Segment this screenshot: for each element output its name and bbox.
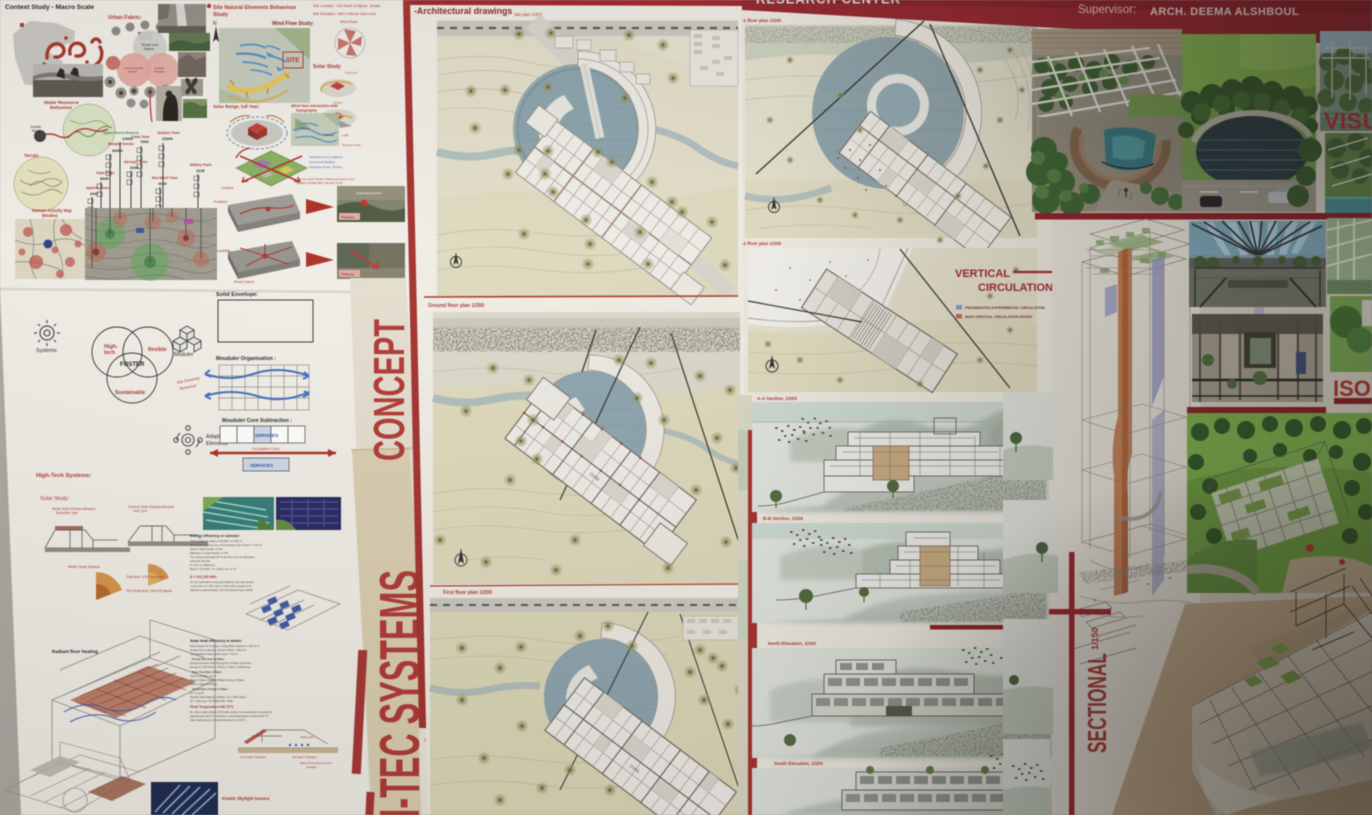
svg-text:Plateau: Plateau <box>324 133 335 137</box>
svg-text:Vegetative Cover (Algebra): Vegetative Cover (Algebra) <box>309 155 343 159</box>
svg-text:Changer: Changer <box>306 765 317 769</box>
svg-text:First floor plan 1/200: First floor plan 1/200 <box>443 590 492 596</box>
svg-text:Supervisor:: Supervisor: <box>1078 4 1136 16</box>
svg-text:Circulation Core: Circulation Core <box>252 447 279 451</box>
svg-text:Mass of Water Volume of Water: Mass of Water Volume of Water Density of… <box>190 679 244 682</box>
svg-text:Road Users: Road Users <box>234 280 254 284</box>
svg-text:20000: 20000 <box>112 150 123 154</box>
svg-text:23000: 23000 <box>162 138 173 142</box>
svg-text:8000: 8000 <box>100 178 109 182</box>
svg-text:topography: topography <box>296 109 318 113</box>
svg-text:Context Study - Macro Scale: Context Study - Macro Scale <box>5 4 94 11</box>
svg-text:Solar Energy Per Collector: m²: Solar Energy Per Collector: m²/day/kWh i… <box>190 645 260 648</box>
svg-text:4500: 4500 <box>158 183 167 187</box>
svg-text:Light: Light <box>342 133 349 137</box>
svg-text:flexible: flexible <box>148 347 167 353</box>
svg-text:Ground floor plan 1/200: Ground floor plan 1/200 <box>428 303 484 309</box>
svg-text:Energy Q = 500 W/m² x 748.2m²: Energy Q = 500 W/m² x 748.2m² x 60sec x … <box>190 666 251 669</box>
svg-text:Orjan Town: Orjan Town <box>96 171 114 175</box>
svg-text:daytime is approximately 103 2: daytime is approximately 103 235 kilowat… <box>190 588 253 592</box>
svg-text:December 1pm: December 1pm <box>56 511 78 515</box>
svg-text:Systems: Systems <box>36 348 57 354</box>
svg-text:Area of Solar Panels: 17.5%: Area of Solar Panels: 17.5% <box>190 547 223 551</box>
svg-text:Factors: Factors <box>128 70 138 74</box>
svg-text:Specific Heat Capacity of Wate: Specific Heat Capacity of Water: Cp = 41… <box>190 696 246 699</box>
svg-text:-1 floor plan 1/200: -1 floor plan 1/200 <box>742 18 782 23</box>
svg-text:Jarbaho Town: Jarbaho Town <box>157 131 180 135</box>
svg-text:when starting from an initial: when starting from an initial temperatur… <box>190 719 246 722</box>
svg-text:CIRCULATION: CIRCULATION <box>978 282 1053 294</box>
svg-text:Summer: Summer <box>345 71 359 75</box>
svg-text:Urban Fabric:: Urban Fabric: <box>108 15 142 21</box>
svg-text:E = W x A x Efficiency: E = W x A x Efficiency <box>190 563 216 567</box>
svg-text:ΔT = Q/(m·cp) = 50 000/80 000: ΔT = Q/(m·cp) = 50 000/80 000 x 4186 <box>190 700 234 703</box>
svg-text:High-Tech Systems:: High-Tech Systems: <box>36 473 91 479</box>
svg-text:Summer wind: Summer wind <box>342 143 361 147</box>
svg-text:Military Point: Military Point <box>190 163 212 167</box>
svg-text:VERTICAL: VERTICAL <box>955 268 1010 280</box>
svg-text:Position: Position <box>214 200 228 204</box>
svg-text:SERVICES: SERVICES <box>250 463 273 468</box>
svg-text:Total Area: 378.2 M square: Total Area: 378.2 M square <box>126 575 164 579</box>
svg-text:Site Elevation : 800 m Above S: Site Elevation : 800 m Above Sea Level <box>313 12 376 16</box>
svg-text:(Nodes): (Nodes) <box>42 213 58 218</box>
svg-text:SITE: SITE <box>286 58 299 64</box>
svg-text:FOSTER: FOSTER <box>120 362 145 368</box>
svg-text:So, the estimated energy gener: So, the estimated energy generated by th… <box>190 580 254 584</box>
svg-text:Hot water Changers: Hot water Changers <box>292 755 317 759</box>
svg-text:RESEARCH CENTER: RESEARCH CENTER <box>756 0 901 7</box>
svg-text:Kinetic Skylight louvers: Kinetic Skylight louvers <box>222 796 270 801</box>
svg-text:Mouduler Core Subtraction :: Mouduler Core Subtraction : <box>222 418 292 424</box>
svg-text:FRAGMANTED EXPERIMENTAL CIRCUL: FRAGMANTED EXPERIMENTAL CIRCULATION <box>965 306 1045 310</box>
svg-text:Solar Heat efficiency in winte: Solar Heat efficiency in winter: <box>190 639 242 643</box>
svg-text:MAIN VERTICAL CIRCULATION NODE: MAIN VERTICAL CIRCULATION NODES <box>965 315 1033 319</box>
svg-text:GREEN COVER 80%, MACRO 70.62: GREEN COVER 80%, MACRO 70.62 <box>296 181 343 185</box>
svg-text:Energy Absorbed Solar Energy F: Energy Absorbed Solar Energy Flux Surfac… <box>190 662 252 665</box>
svg-text:7000: 7000 <box>140 141 149 145</box>
svg-text:CONCEPT: CONCEPT <box>365 319 414 461</box>
svg-text:The energy generated 20 % rate: The energy generated 20 % rate from can … <box>190 555 255 559</box>
svg-text:in one hour is 2,700 x 2pm or: in one hour is 2,700 x 2pm or 44m with a… <box>190 584 252 588</box>
svg-text:Plateau: Plateau <box>341 272 355 277</box>
svg-text:1528: 1528 <box>196 170 205 174</box>
svg-text:Mass of Water 80 000kg: Mass of Water 80 000kg <box>190 683 218 686</box>
svg-text:ISOMETR: ISOMETR <box>1333 376 1372 401</box>
svg-text:Mouduler Organisation :: Mouduler Organisation : <box>216 356 276 362</box>
svg-text:Radiant floor heating: Radiant floor heating <box>52 649 98 654</box>
svg-text:South Elevation, 1/200: South Elevation, 1/200 <box>774 761 823 766</box>
svg-text:Plateau: Plateau <box>341 215 355 220</box>
svg-text:Site Natural Elements Behaviou: Site Natural Elements Behaviour <box>213 5 297 11</box>
svg-text:Commercial Building: Commercial Building <box>309 160 335 164</box>
svg-text:Suggested position: Suggested position <box>356 191 382 195</box>
svg-text:Solar Range, full Year:: Solar Range, full Year: <box>213 104 260 109</box>
svg-text:Solar irradiance range is 5.8: Solar irradiance range is 5.8 kWh / m² 2… <box>190 539 242 543</box>
svg-text:13000: 13000 <box>122 138 133 142</box>
svg-text:N: N <box>213 21 217 27</box>
svg-text:Barqash forests: Barqash forests <box>108 142 134 146</box>
svg-text:tech: tech <box>104 350 115 356</box>
svg-text:Sustainable: Sustainable <box>115 390 145 396</box>
svg-text:North Elevation, 1/200: North Elevation, 1/200 <box>768 641 816 646</box>
svg-text:Total Radiated Solar panels Us: Total Radiated Solar panels Used = 713 m… <box>190 653 238 656</box>
svg-text:Solid Envelope:: Solid Envelope: <box>216 292 258 298</box>
svg-text:Moduler: Moduler <box>174 352 194 358</box>
svg-text:Sarooph Town: Sarooph Town <box>124 160 147 164</box>
svg-text:SECTIONAL: SECTIONAL <box>1082 653 1112 753</box>
svg-text:Final Temperature=66.73°C: Final Temperature=66.73°C <box>190 705 234 709</box>
svg-text:1/150: 1/150 <box>1090 627 1100 650</box>
svg-text:Heritage: Heritage <box>154 70 165 74</box>
svg-text:during June (turning time of D: during June (turning time of December) a… <box>190 543 262 547</box>
svg-text:Wind Rose: Wind Rose <box>340 20 358 24</box>
svg-text:Context: Context <box>221 186 233 190</box>
svg-text:Volume of Water: 80 m³: Volume of Water: 80 m³ <box>190 675 216 678</box>
svg-text:Surface Area Collectors of Are: Surface Area Collectors of Area of Roof … <box>190 649 247 652</box>
svg-text:-2 floor plan 1/200: -2 floor plan 1/200 <box>742 241 782 246</box>
svg-text:River: River <box>32 129 41 133</box>
svg-text:Q = m cp ΔT: Q = m cp ΔT <box>190 692 205 695</box>
svg-text:Wind flow interaction with: Wind flow interaction with <box>291 104 339 108</box>
svg-text:E = 103,235 kWh: E = 103,235 kWh <box>190 575 216 579</box>
svg-text:B-B Section, 1/200: B-B Section, 1/200 <box>763 516 804 521</box>
svg-text:2500: 2500 <box>130 167 139 171</box>
svg-text:ARCH. DEEMA ALSHBOUL: ARCH. DEEMA ALSHBOUL <box>1150 6 1299 18</box>
svg-text:Efficiency of Solar Panels: 17: Efficiency of Solar Panels: 17.5% <box>190 551 229 555</box>
svg-text:Solar Study: Solar Study <box>313 64 341 70</box>
svg-text:-Architectural drawings: -Architectural drawings <box>414 6 512 16</box>
svg-text:Site Location : Far South of A: Site Location : Far South of Ajloun, Jor… <box>313 4 380 8</box>
svg-text:Max E = 5.6 kWh / m² x 295.2 m: Max E = 5.6 kWh / m² x 295.2 m² x 0.75 <box>190 567 236 571</box>
svg-text:Plateau: Plateau <box>300 126 311 130</box>
svg-text:Winter Solar Shadow: Winter Solar Shadow <box>68 565 100 569</box>
svg-text:Solar Study:: Solar Study: <box>40 496 69 502</box>
svg-text:Temperature Change of Water:: Temperature Change of Water: <box>192 688 228 691</box>
svg-text:June 1pm: June 1pm <box>133 509 147 513</box>
svg-text:Ras Munif Town: Ras Munif Town <box>152 176 178 180</box>
svg-text:Ajabnah Town: Ajabnah Town <box>86 186 109 190</box>
svg-text:Vegetative Cover - Bushes: Vegetative Cover - Bushes <box>309 165 343 169</box>
svg-text:Energy efficiency in summer:: Energy efficiency in summer: <box>190 534 240 538</box>
svg-text:using the formula: using the formula <box>190 559 210 563</box>
svg-text:approximately 56.3°C, resultin: approximately 56.3°C, resulting in a fin… <box>190 715 269 718</box>
svg-text:So, with a water volume of 80: So, with a water volume of 80 cubic mete… <box>190 711 273 714</box>
svg-text:Nature: Nature <box>144 47 154 51</box>
svg-text:VISUAL: VISUAL <box>1324 108 1372 134</box>
svg-text:Energy Absorbed by Water:: Energy Absorbed by Water: <box>192 658 225 661</box>
svg-text:Cool water Changers: Cool water Changers <box>240 755 267 759</box>
svg-text:A-A Section, 1/200: A-A Section, 1/200 <box>757 396 797 401</box>
svg-text:Study: Study <box>213 12 228 18</box>
svg-text:The Roofs Area: 230.8 M square: The Roofs Area: 230.8 M square <box>126 589 172 593</box>
svg-text:SERVICES: SERVICES <box>255 433 278 438</box>
svg-text:Zubia Town: Zubia Town <box>131 135 150 139</box>
svg-text:Water gate: Water gate <box>300 735 314 739</box>
svg-text:Behaviour: Behaviour <box>50 105 73 110</box>
svg-text:Mass Flow Rate of Water:: Mass Flow Rate of Water: <box>192 671 222 674</box>
svg-text:Wind Flow Study:: Wind Flow Study: <box>272 21 314 27</box>
